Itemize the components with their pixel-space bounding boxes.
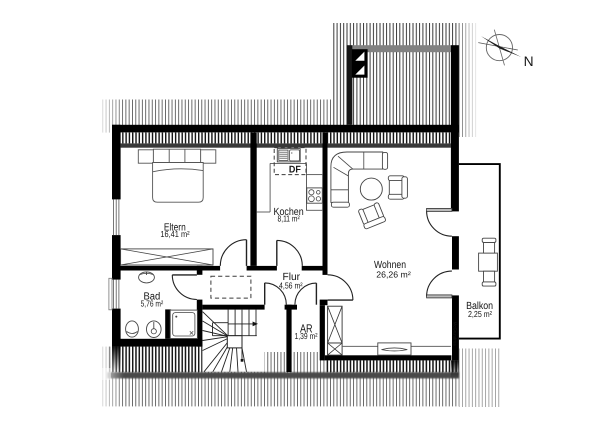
svg-text:8,11 m²: 8,11 m² xyxy=(278,214,300,224)
svg-text:DF: DF xyxy=(289,165,301,176)
svg-text:5,76 m²: 5,76 m² xyxy=(141,298,164,308)
svg-text:4,56 m²: 4,56 m² xyxy=(279,280,303,290)
svg-text:1,39 m²: 1,39 m² xyxy=(295,331,318,341)
svg-text:McGrundriss: McGrundriss xyxy=(453,322,458,347)
svg-text:16,41 m²: 16,41 m² xyxy=(160,229,189,239)
svg-text:N: N xyxy=(524,54,534,69)
svg-text:2,25 m²: 2,25 m² xyxy=(468,309,492,319)
svg-text:26,26 m²: 26,26 m² xyxy=(376,269,411,279)
